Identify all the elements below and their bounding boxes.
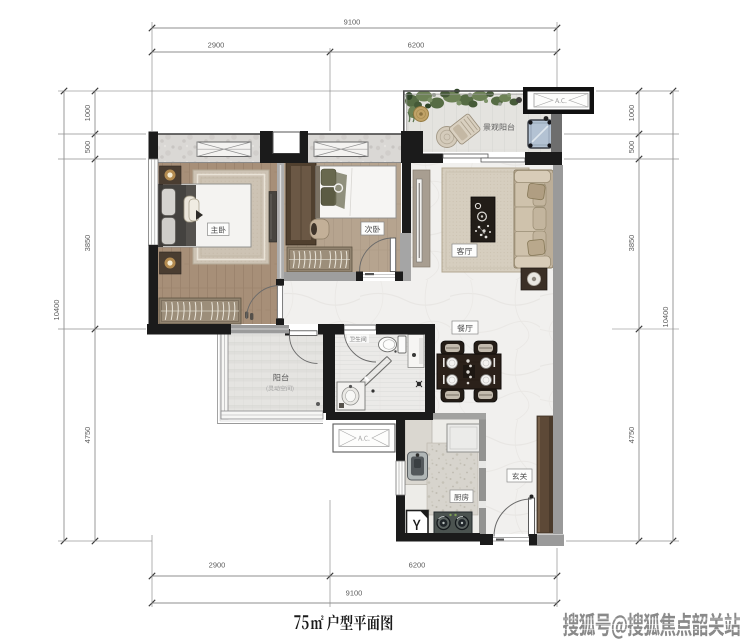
svg-text:4750: 4750 [627,427,636,444]
svg-text:10400: 10400 [661,307,670,328]
svg-text:9100: 9100 [346,589,363,598]
svg-text:500: 500 [627,141,636,154]
svg-text:2900: 2900 [209,561,226,570]
svg-text:4750: 4750 [83,427,92,444]
svg-text:1000: 1000 [627,105,636,122]
svg-text:6200: 6200 [408,41,425,50]
svg-text:9100: 9100 [344,18,361,27]
svg-text:3850: 3850 [83,235,92,252]
svg-text:3850: 3850 [627,235,636,252]
svg-text:2900: 2900 [208,41,225,50]
svg-text:10400: 10400 [52,300,61,321]
svg-text:6200: 6200 [409,561,426,570]
svg-text:1000: 1000 [83,105,92,122]
svg-text:500: 500 [83,141,92,154]
